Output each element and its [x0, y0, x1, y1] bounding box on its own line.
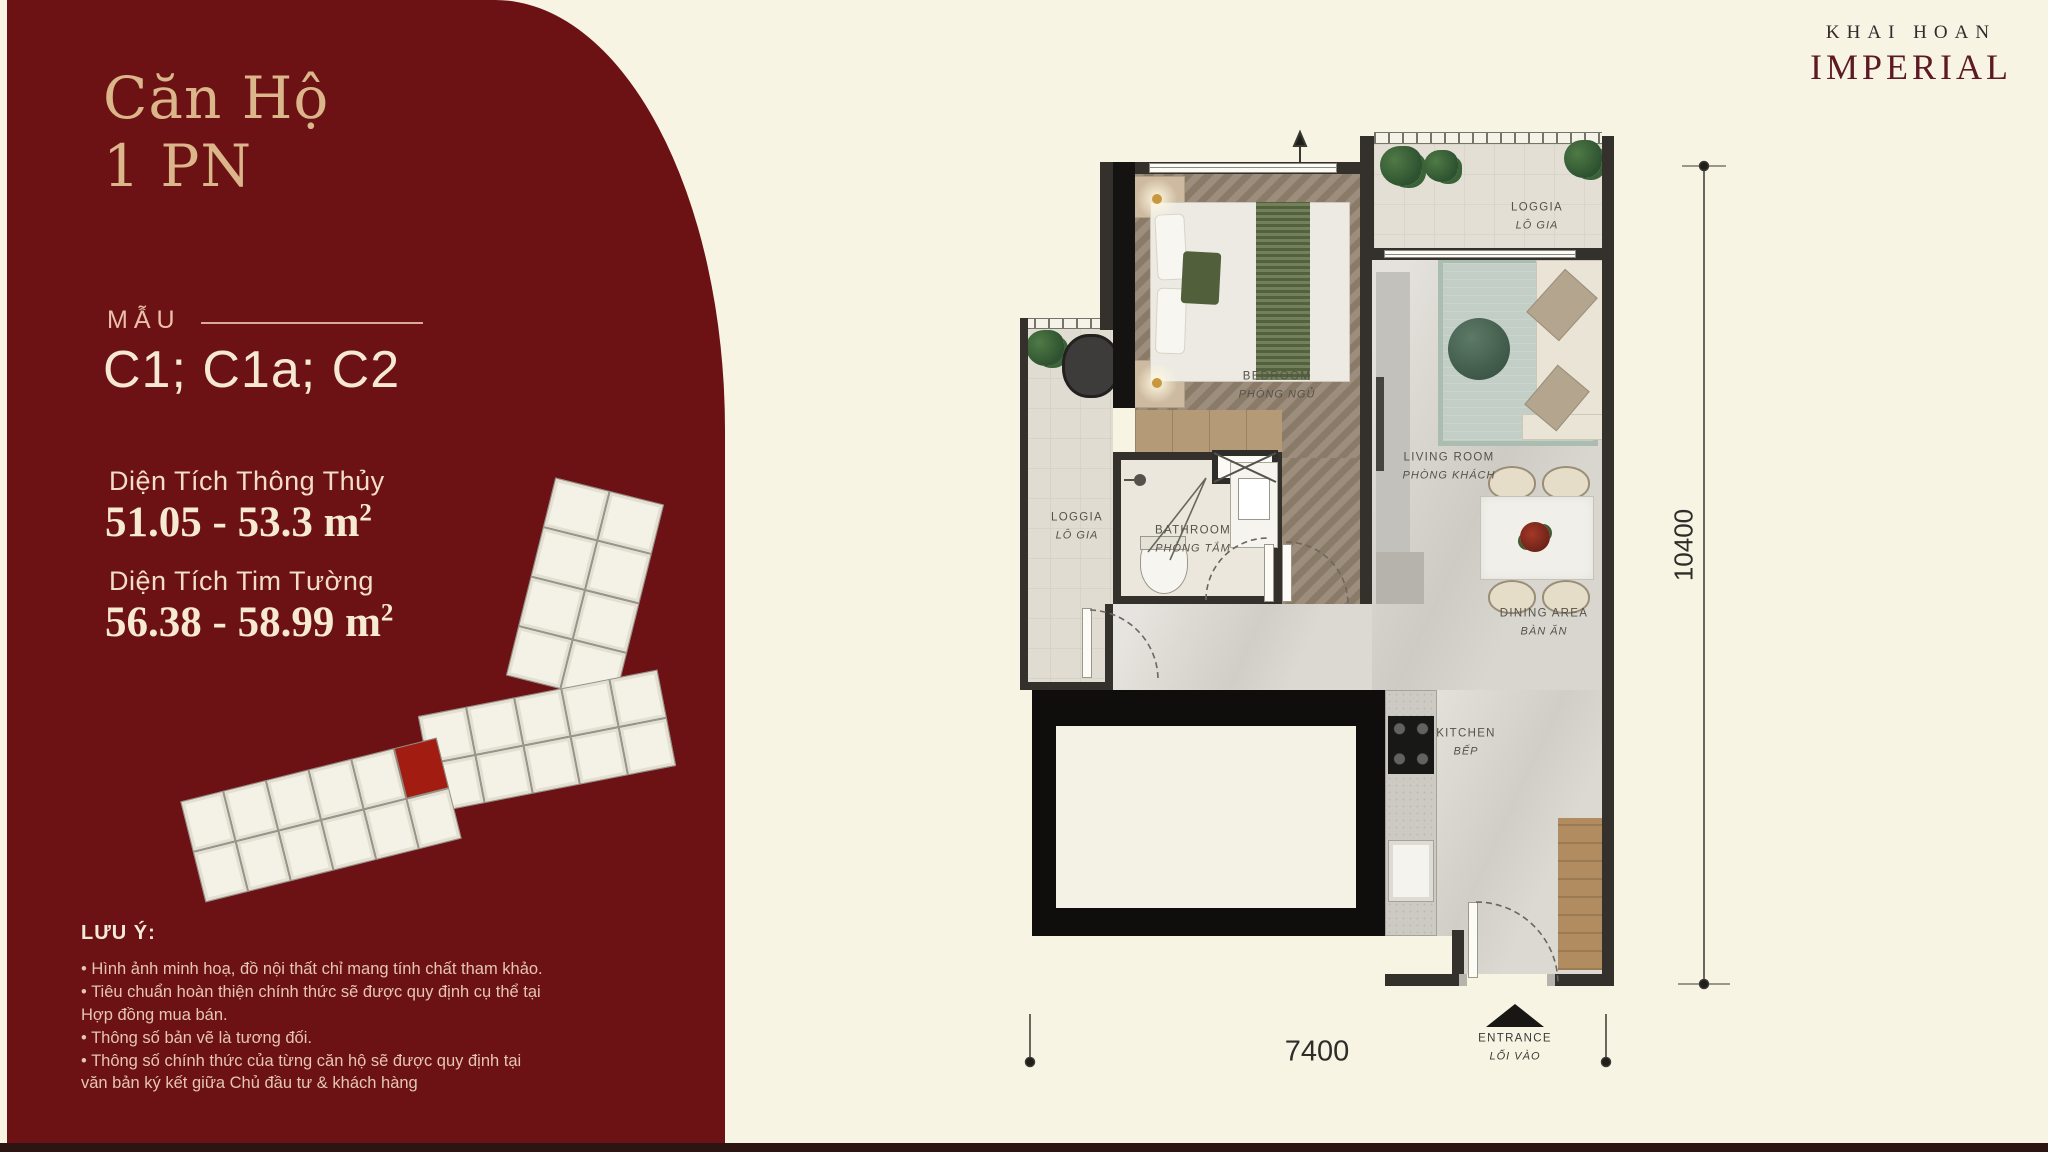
dimension-height: 10400 — [1669, 509, 1700, 581]
room-label-vi: LÔ GIA — [1051, 527, 1103, 544]
room-label-entrance: ENTRANCE LỐI VÀO — [1478, 1031, 1552, 1066]
room-label-living: LIVING ROOM PHÒNG KHÁCH — [1403, 450, 1496, 485]
dimension-width: 7400 — [1285, 1036, 1350, 1069]
room-label-en: KITCHEN — [1436, 728, 1496, 740]
plan-linework — [0, 0, 2048, 1152]
room-label-en: BATHROOM — [1155, 525, 1231, 537]
room-label-vi: PHÒNG NGỦ — [1239, 386, 1316, 403]
room-label-vi: PHÒNG KHÁCH — [1403, 467, 1496, 484]
room-label-vi: LÔ GIA — [1511, 217, 1563, 234]
bottom-accent-bar — [0, 1143, 2048, 1152]
room-label-en: LOGGIA — [1051, 512, 1103, 524]
room-label-bathroom: BATHROOM PHÒNG TẮM — [1155, 523, 1231, 558]
room-label-dining: DINING AREA BÀN ĂN — [1500, 606, 1588, 641]
room-label-loggia-left: LOGGIA LÔ GIA — [1051, 510, 1103, 545]
room-label-en: LIVING ROOM — [1404, 452, 1495, 464]
room-label-bedroom: BEDROOM PHÒNG NGỦ — [1239, 369, 1316, 404]
room-label-loggia-top: LOGGIA LÔ GIA — [1511, 200, 1563, 235]
room-label-vi: BÀN ĂN — [1500, 623, 1588, 640]
room-label-vi: LỐI VÀO — [1478, 1048, 1552, 1065]
room-label-kitchen: KITCHEN BẾP — [1436, 726, 1496, 761]
room-label-en: ENTRANCE — [1478, 1033, 1552, 1045]
room-label-en: DINING AREA — [1500, 608, 1588, 620]
entrance-arrow-icon — [1486, 1004, 1544, 1027]
room-label-vi: BẾP — [1436, 743, 1496, 760]
room-label-vi: PHÒNG TẮM — [1155, 540, 1231, 557]
brochure-page: Căn Hộ 1 PN MẪU C1; C1a; C2 Diện Tích Th… — [0, 0, 2048, 1152]
room-label-en: BEDROOM — [1243, 371, 1312, 383]
room-label-en: LOGGIA — [1511, 202, 1563, 214]
